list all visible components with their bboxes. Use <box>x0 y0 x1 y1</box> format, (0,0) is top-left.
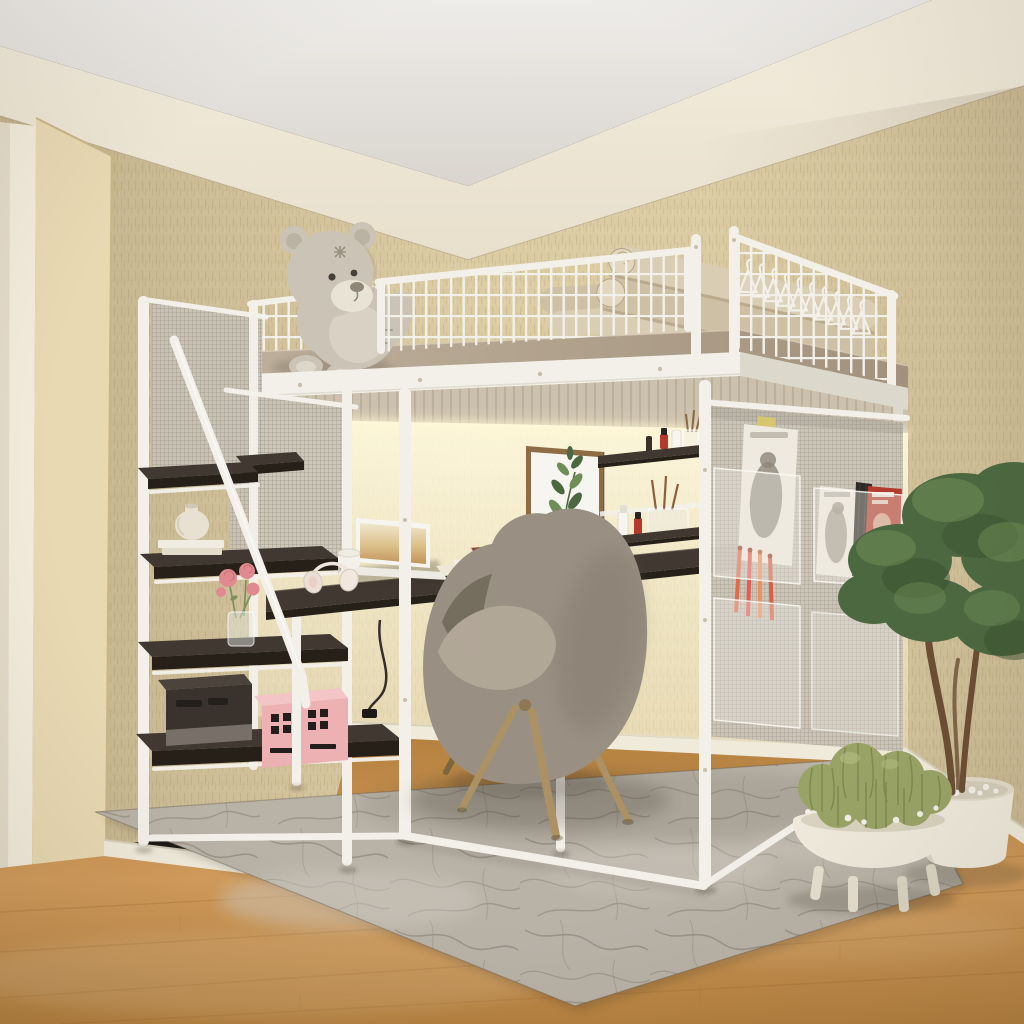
room-scene: 3D render: bedroom with white metal loft… <box>0 0 1024 1024</box>
room-photo: 3D render: bedroom with white metal loft… <box>0 0 1024 1024</box>
vignette <box>0 0 1024 1024</box>
